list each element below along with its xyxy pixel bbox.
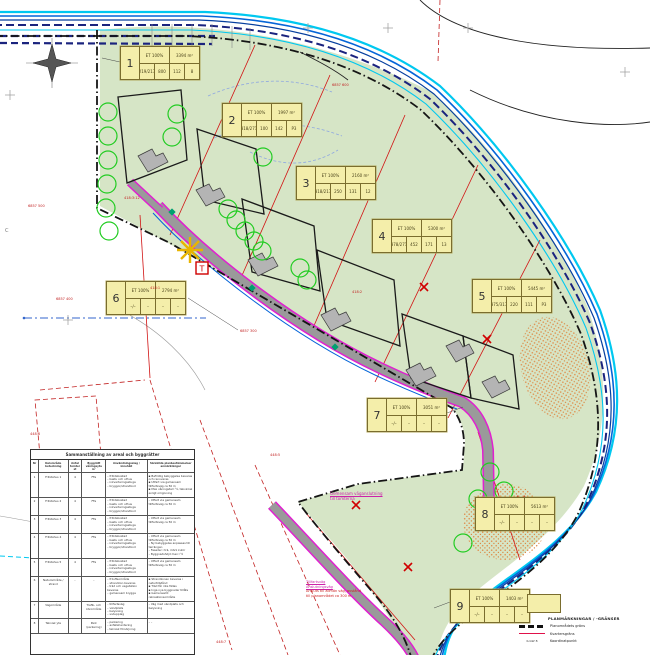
table-cell-use: fritidsbostadbastu och uthusinkvartering… (106, 498, 147, 515)
table-cell-notes: Utfart via gemensam tillfartsväg ca 50 m (148, 516, 194, 533)
parcel-value: – (499, 606, 514, 622)
parcel-efficiency: ET 100% (242, 104, 271, 120)
survey-number-label: 6857 300 (240, 329, 257, 333)
bullet-item: – (149, 621, 193, 624)
survey-number-label: 6857 400 (56, 297, 73, 301)
site-plan-canvas: T 1ET 100%3394 m²219/21780011282ET 100%1… (0, 0, 650, 655)
bullet-item: snöupplag (107, 613, 145, 616)
parcel-area: 5445 m² (521, 280, 551, 296)
parcel-value: 142 (271, 120, 286, 136)
parcel-value: 452 (406, 236, 421, 252)
compass-rose-icon (26, 38, 78, 88)
parcel-value: – (509, 514, 524, 530)
parcel-value: –/– (126, 298, 140, 314)
table-cell: 8 (31, 619, 39, 632)
table-cell: FFa (82, 559, 106, 576)
survey-number-label: 418:2 (352, 290, 362, 294)
legend-label: Planområdets gräns (550, 624, 585, 628)
parcel-label-2: 2ET 100%1997 m²318/271100142P3 (222, 103, 302, 137)
parcel-number: 1 (121, 47, 140, 79)
parcel-number: 3 (297, 167, 316, 199)
parcel-number: 2 (223, 104, 242, 136)
table-cell-use: tillfartsvägvändplatsbelysningsnöupplag (106, 602, 147, 619)
parcel-number: 5 (473, 280, 492, 312)
legend-item-plan-boundary: Planområdets gräns (519, 624, 649, 628)
table-cell: 7 (31, 602, 39, 619)
survey-number-label: 448:7 (216, 640, 226, 644)
plan-boundary-dash-icon (519, 625, 545, 628)
table-cell: FFa (82, 473, 106, 497)
parcel-value: –/– (495, 514, 509, 530)
parcel-value: 131 (345, 183, 360, 199)
survey-number-label: 6857 500 (28, 204, 45, 208)
parcel-value: 13 (436, 236, 451, 252)
parcel-value: – (155, 298, 170, 314)
parcel-value: –/– (387, 415, 401, 431)
table-cell-notes: Utfart via gemensam tillfartsväg ca 50 m (148, 498, 194, 515)
red-line-icon (519, 633, 545, 634)
parcel-area: 3394 m² (169, 47, 199, 63)
table-cell: Fritidshus 3 (39, 516, 69, 533)
table-cell: – (69, 577, 83, 601)
legend-item-red-line: Kvartersgräns (519, 632, 649, 636)
svg-text:T: T (199, 265, 205, 274)
parcel-value: 100 (256, 120, 271, 136)
table-cell-use: fritidsbostadbastu och uthusinkvartering… (106, 473, 147, 497)
bullet-item: Utfart via gemensam tillfartsväg ca 50 m (149, 517, 193, 524)
parcel-value: 318/217 (316, 183, 330, 199)
table-cell: 4 (69, 534, 83, 558)
table-row: 3Fritidshus 34FFafritidsbostadbastu och … (31, 516, 194, 534)
legend-item-coordinate: K-GW 8 Koordinatpunkt (519, 639, 649, 643)
summary-table-header: NrDelområde beteckningAntal tomter stByg… (31, 460, 194, 473)
survey-number-label: 418:1 (150, 286, 160, 290)
parcel-value: 378/271 (392, 236, 406, 252)
parcel-area: 3051 m² (416, 399, 446, 415)
legend-label: Kvartersgräns (550, 632, 575, 636)
parcel-efficiency: ET 100% (470, 590, 499, 606)
parcel-label-1: 1ET 100%3394 m²219/2178001128 (120, 46, 200, 80)
table-cell-use: fritidsbostadbastu och uthusinkvartering… (106, 516, 147, 533)
bullet-item: Utfart via gemensam tillfartsväg ca 50 m (149, 560, 193, 567)
parcel-value: – (484, 606, 499, 622)
section-letter: C (5, 228, 9, 234)
parcel-value: 171 (421, 236, 436, 252)
parcel-number: 7 (368, 399, 387, 431)
table-row: 4Fritidshus 44FFafritidsbostadbastu och … (31, 534, 194, 559)
table-cell-use: fritidsbostadbastu och uthusinkvartering… (106, 534, 147, 558)
parcel-efficiency: ET 100% (392, 220, 421, 236)
parcel-number: 4 (373, 220, 392, 252)
table-cell-use: friluftsområdestrandzon bevarasträd och … (106, 577, 147, 601)
parcel-value: 375/317 (492, 296, 506, 312)
parcel-value: 800 (154, 63, 169, 79)
table-cell: 5 (31, 559, 39, 576)
table-cell: 4 (31, 534, 39, 558)
bullet-item: Max våningstal I ½, takvinkel enligt omg… (149, 488, 193, 495)
parcel-value: 112 (169, 63, 184, 79)
parcel-label-3: 3ET 100%2160 m²318/21725013112 (296, 166, 376, 200)
table-cell-notes: Utfart via gemensam tillfartsväg ca 50 m (148, 559, 194, 576)
parcel-number: 9 (451, 590, 470, 622)
table-cell: Vägområde (39, 602, 69, 619)
parcel-label-7: 7ET 100%3051 m²–/–––– (367, 398, 447, 432)
survey-number-label: 6857 600 (332, 83, 349, 87)
table-cell (69, 602, 83, 619)
parcel-area: 1403 m² (499, 590, 529, 606)
summary-table: Sammanställning av areal och byggrätter … (30, 449, 195, 655)
bullet-item: Utfart via gemensam tillfartsväg ca 50 m (149, 499, 193, 506)
parcel-label-8: 8ET 100%5613 m²–/–––– (475, 497, 555, 531)
bullet-item: gemensam brygga (107, 592, 145, 595)
parcel-value: – (431, 415, 446, 431)
table-cell: Naturområde / strand (39, 577, 69, 601)
parcel-value: 12 (360, 183, 375, 199)
table-header-cell: Byggrätt våningsyta m² (82, 460, 106, 472)
parcel-efficiency: ET 100% (126, 282, 155, 298)
bullet-item: teknisk försörjning (107, 628, 145, 631)
parcel-value: – (170, 298, 185, 314)
table-header-cell: Användningsslag / innehåll (106, 460, 147, 472)
parcel-efficiency: ET 100% (316, 167, 345, 183)
table-header-cell: Nr (31, 460, 39, 472)
bullet-item: bryggor/strandbod (107, 510, 145, 513)
table-cell-use: fritidsbostadbastu och uthusinkvartering… (106, 559, 147, 576)
parcel-value: –/– (470, 606, 484, 622)
parcel-value: – (401, 415, 416, 431)
parcel-value: P3 (286, 120, 301, 136)
survey-number-label: 448:6 (30, 432, 40, 436)
parcel-label-9: 9ET 100%1403 m²–/–––– (450, 589, 530, 623)
legend-title: PLANMÄRKNINGAR / -GRÄNSER (548, 616, 649, 621)
coordinate-key: K-GW 8 (519, 639, 545, 643)
table-cell-use: parkeringavfallshanteringteknisk försörj… (106, 619, 147, 632)
parcel-value: – (524, 514, 539, 530)
bullet-item: bryggor/strandbod (107, 546, 145, 549)
parcel-efficiency: ET 100% (492, 280, 521, 296)
parcel-value: 250 (330, 183, 345, 199)
table-row: 2Fritidshus 24FFafritidsbostadbastu och … (31, 498, 194, 516)
unlabeled-yellow-box (527, 594, 561, 613)
parcel-area: 1997 m² (271, 104, 301, 120)
bullet-item: bryggor/strandbod (107, 528, 145, 531)
table-header-cell: Antal tomter st (69, 460, 83, 472)
table-cell: Fritidshus 5 (39, 559, 69, 576)
table-cell: 4 (69, 559, 83, 576)
parcel-area: 2160 m² (345, 167, 375, 183)
parcel-value: 220 (506, 296, 521, 312)
parcel-label-5: 5ET 100%5445 m²375/317220111P3 (472, 279, 552, 313)
bullet-item: bryggor/strandbod (107, 485, 145, 488)
table-cell: Trafik- och körområde (82, 602, 106, 619)
bullet-item: Väg med vändplats och belysning (149, 603, 193, 610)
table-cell-notes: Befintlig bebyggelse bevaras och renover… (148, 473, 194, 497)
table-cell (69, 619, 83, 632)
table-cell: Park (parkering) (82, 619, 106, 632)
parcel-label-6: 6ET 100%2794 m²–/–––– (106, 281, 186, 315)
table-cell: 1 (31, 473, 39, 497)
parcel-value: 219/217 (140, 63, 154, 79)
parcel-area: 5300 m² (421, 220, 451, 236)
survey-number-label: 418:3:12 (124, 196, 140, 200)
table-cell: FFa (82, 498, 106, 515)
parcel-efficiency: ET 100% (495, 498, 524, 514)
table-cell: 4 (69, 473, 83, 497)
table-header-cell: Särskilda planbestämmelser anmärkningar (148, 460, 194, 472)
bullet-item: bryggor/strandbod (107, 571, 145, 574)
parcel-label-4: 4ET 100%5300 m²378/27145217113 (372, 219, 452, 253)
parcel-number: 8 (476, 498, 495, 530)
table-row: 6Naturområde / strand––friluftsområdestr… (31, 577, 194, 602)
parcel-efficiency: ET 100% (387, 399, 416, 415)
table-cell-notes: – (148, 619, 194, 632)
table-cell-notes: Utfart via gemensam tillfartsväg ca 50 m… (148, 534, 194, 558)
table-header-cell: Delområde beteckning (39, 460, 69, 472)
table-cell-notes: Strandzonen bevaras i naturtillståndTräd… (148, 577, 194, 601)
table-cell: 2 (31, 498, 39, 515)
bullet-item: Gemensamt rekreationsområde (149, 592, 193, 599)
parcel-value: 318/271 (242, 120, 256, 136)
table-cell: 4 (69, 498, 83, 515)
tree-icon (100, 222, 118, 240)
table-row: 1Fritidshus 14FFafritidsbostadbastu och … (31, 473, 194, 498)
table-cell: Teknisk yta (39, 619, 69, 632)
parcel-number: 6 (107, 282, 126, 314)
map-legend: PLANMÄRKNINGAR / -GRÄNSER Planområdets g… (519, 616, 649, 643)
survey-number-label: 448:5 (270, 453, 280, 457)
parcel-value: – (539, 514, 554, 530)
table-cell: 4 (69, 516, 83, 533)
parcel-area: 5613 m² (524, 498, 554, 514)
parcel-area: 2794 m² (155, 282, 185, 298)
table-row: 8Teknisk ytaPark (parkering)parkeringavf… (31, 619, 194, 633)
legend-label: Koordinatpunkt (550, 639, 577, 643)
parcel-efficiency: ET 100% (140, 47, 169, 63)
parcel-value: 111 (521, 296, 536, 312)
table-cell: FFa (82, 534, 106, 558)
annotation-access-road: Tillfartsväg Anslutningsväg Ansluts till… (306, 580, 361, 598)
parcel-value: – (140, 298, 155, 314)
table-cell: FFa (82, 516, 106, 533)
table-cell: – (82, 577, 106, 601)
table-cell: Fritidshus 2 (39, 498, 69, 515)
table-cell-notes: Väg med vändplats och belysning (148, 602, 194, 619)
parcel-value: P3 (536, 296, 551, 312)
annotation-road-connection: Gemensam väganslutning till tomterna (330, 491, 383, 501)
table-cell: 6 (31, 577, 39, 601)
table-cell: Fritidshus 1 (39, 473, 69, 497)
transformer-marker: T (196, 262, 208, 274)
parcel-value: 8 (184, 63, 199, 79)
bullet-item: Byggnadshöjd max I ½ (149, 553, 193, 556)
table-cell: Fritidshus 4 (39, 534, 69, 558)
table-row: 7VägområdeTrafik- och körområdetillfarts… (31, 602, 194, 620)
table-row: 5Fritidshus 54FFafritidsbostadbastu och … (31, 559, 194, 577)
table-cell: 3 (31, 516, 39, 533)
summary-table-body: 1Fritidshus 14FFafritidsbostadbastu och … (31, 473, 194, 634)
summary-table-title: Sammanställning av areal och byggrätter (31, 450, 194, 460)
parcel-value: – (416, 415, 431, 431)
